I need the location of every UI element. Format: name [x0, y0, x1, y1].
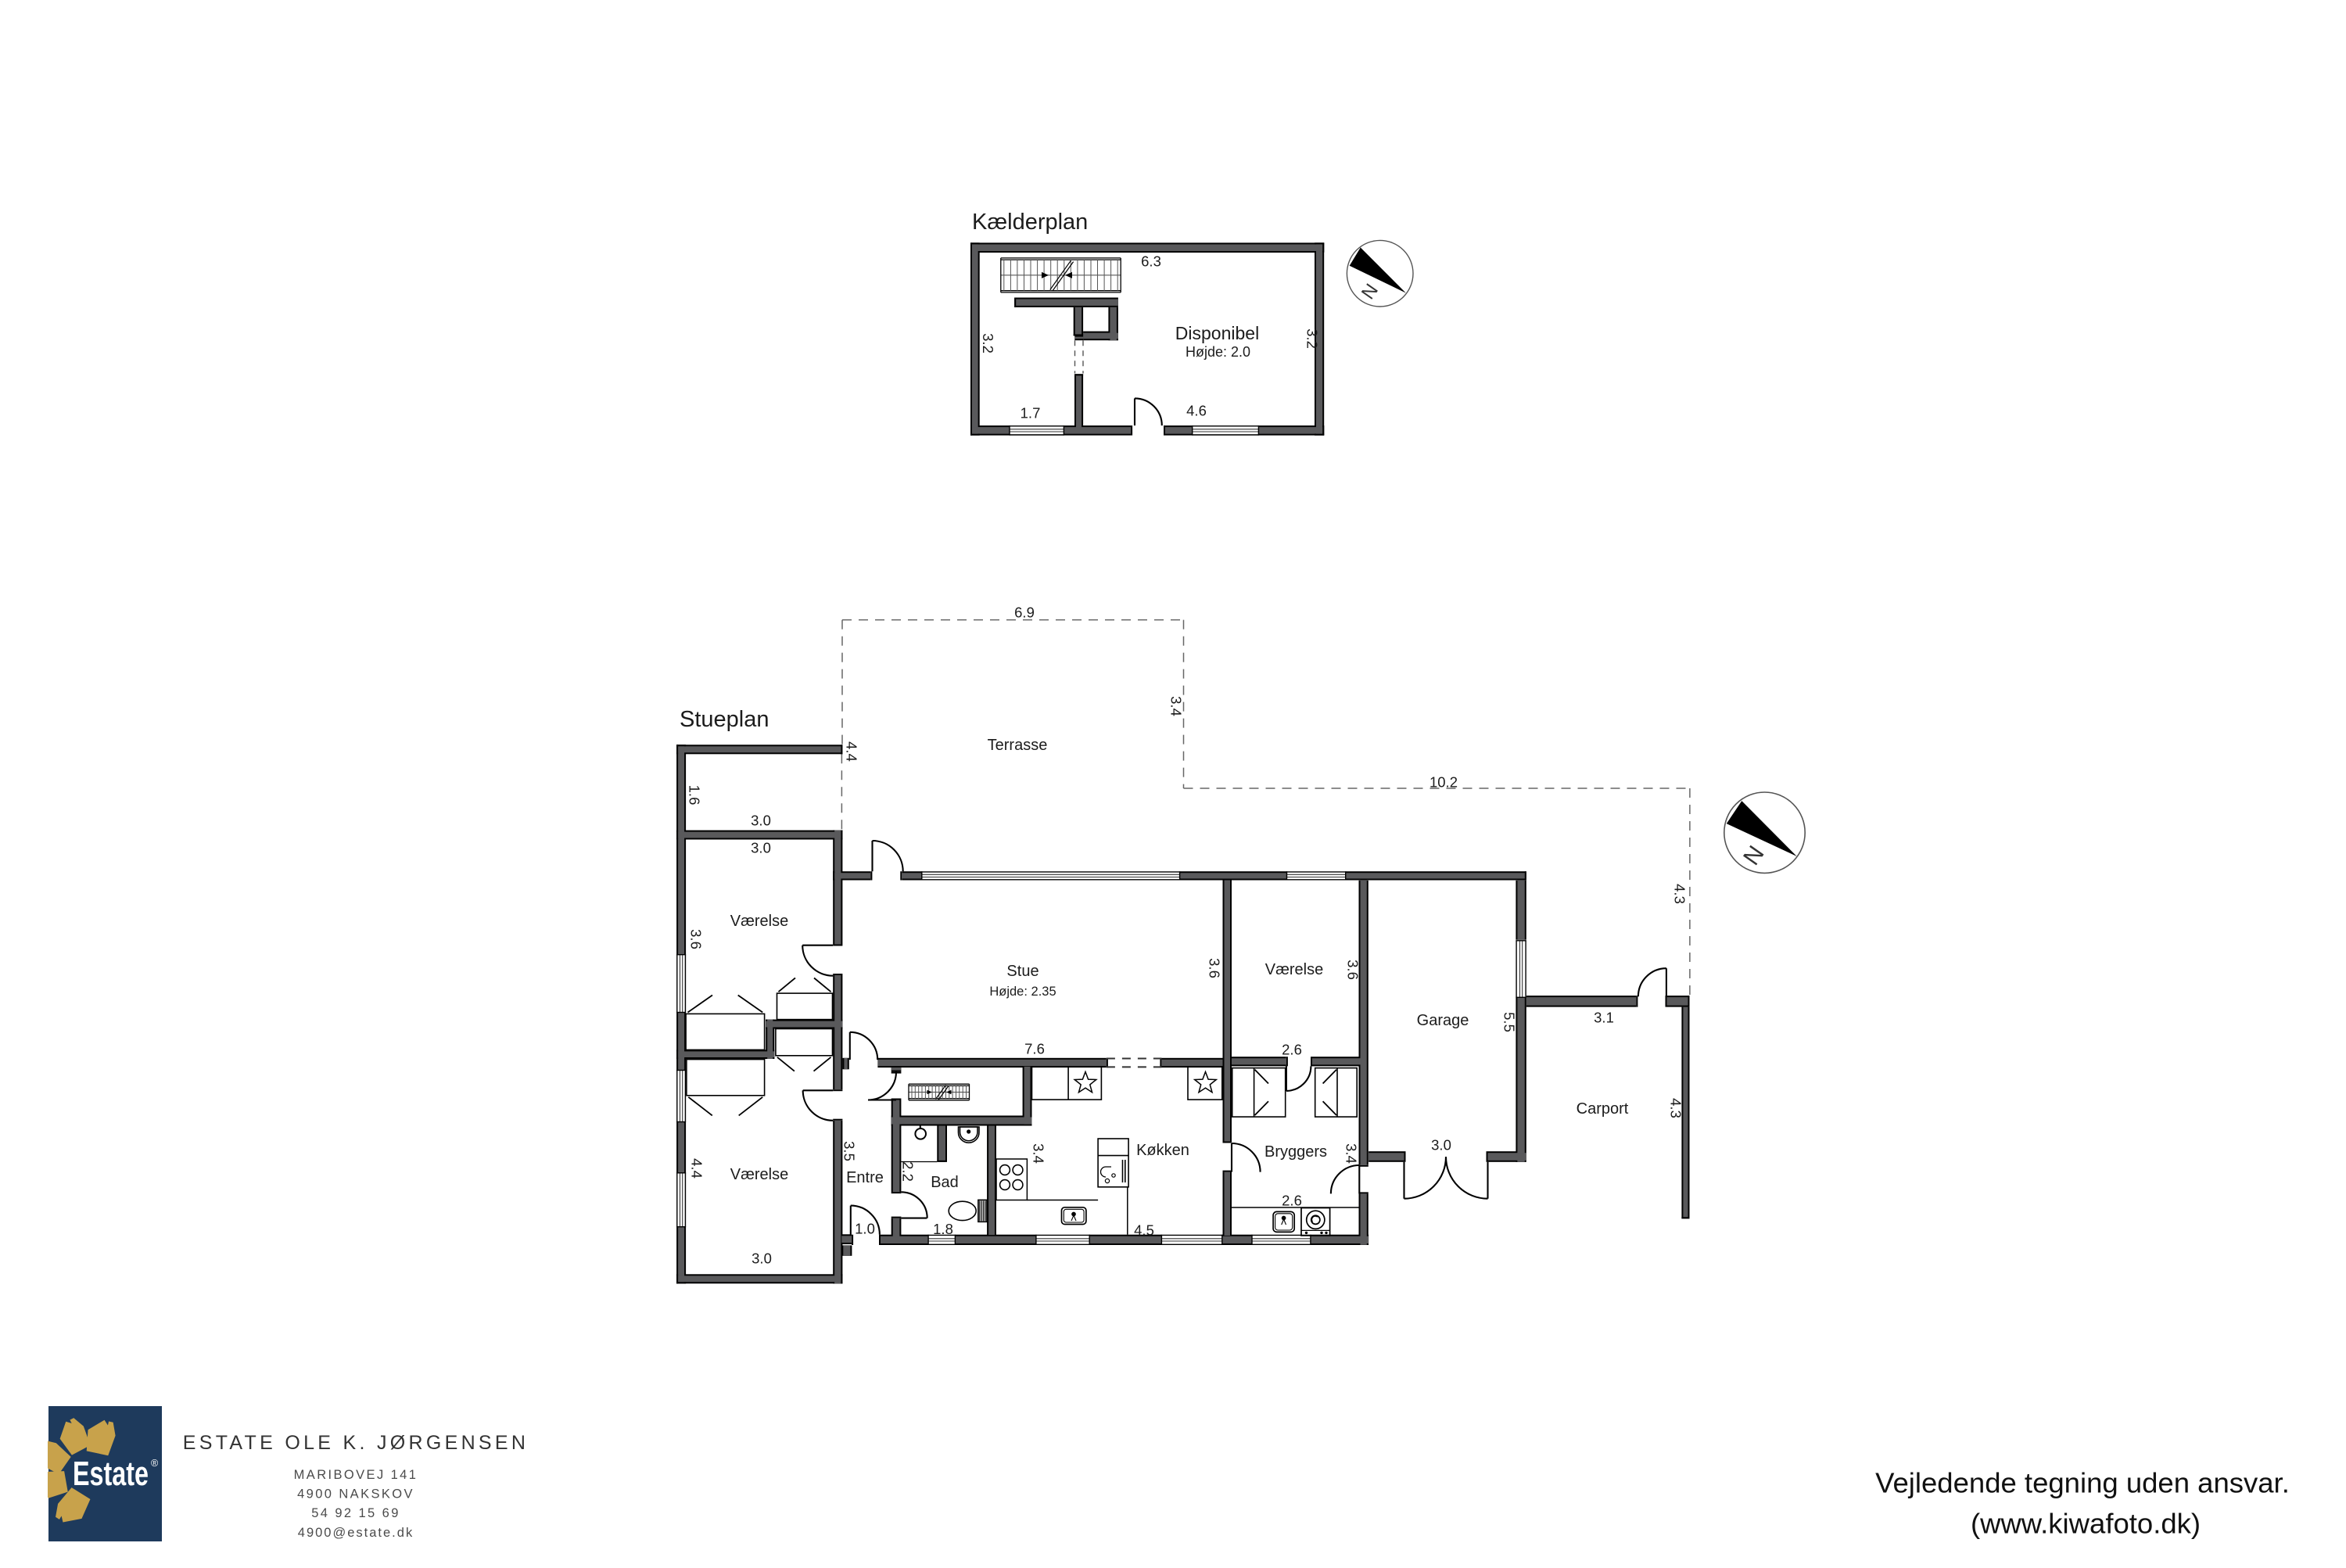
svg-text:Højde: 2.0: Højde: 2.0 — [1186, 344, 1250, 360]
svg-text:Stue: Stue — [1006, 963, 1038, 980]
svg-text:Værelse: Værelse — [730, 913, 788, 930]
svg-text:Estate: Estate — [73, 1455, 149, 1493]
svg-text:1.6: 1.6 — [687, 785, 703, 806]
svg-text:10.2: 10.2 — [1429, 774, 1458, 791]
svg-text:3.6: 3.6 — [1207, 958, 1223, 978]
svg-text:3.4: 3.4 — [1168, 696, 1185, 716]
svg-text:1.7: 1.7 — [1021, 405, 1041, 422]
svg-text:Terrasse: Terrasse — [988, 737, 1048, 754]
svg-text:Stueplan: Stueplan — [680, 707, 769, 732]
svg-text:Kælderplan: Kælderplan — [972, 210, 1088, 235]
svg-text:2.2: 2.2 — [900, 1161, 917, 1182]
svg-text:Værelse: Værelse — [730, 1166, 788, 1183]
svg-text:4900 NAKSKOV: 4900 NAKSKOV — [297, 1487, 414, 1502]
svg-text:2.6: 2.6 — [1282, 1042, 1302, 1058]
svg-text:54 92 15 69: 54 92 15 69 — [311, 1506, 400, 1520]
svg-text:3.6: 3.6 — [1345, 960, 1361, 980]
svg-text:2.6: 2.6 — [1282, 1193, 1302, 1209]
svg-text:6.3: 6.3 — [1141, 253, 1161, 270]
svg-text:Entre: Entre — [846, 1169, 884, 1186]
svg-text:1.8: 1.8 — [933, 1221, 953, 1237]
svg-text:7.6: 7.6 — [1024, 1041, 1045, 1057]
svg-text:4.3: 4.3 — [1672, 884, 1688, 904]
svg-text:4.3: 4.3 — [1668, 1098, 1684, 1118]
svg-text:MARIBOVEJ 141: MARIBOVEJ 141 — [294, 1468, 418, 1482]
svg-text:Bryggers: Bryggers — [1264, 1143, 1327, 1161]
svg-text:(www.kiwafoto.dk): (www.kiwafoto.dk) — [1971, 1508, 2201, 1540]
svg-text:3.4: 3.4 — [1031, 1143, 1047, 1164]
svg-text:3.0: 3.0 — [751, 813, 771, 829]
svg-text:4.4: 4.4 — [689, 1158, 705, 1179]
svg-text:Køkken: Køkken — [1136, 1142, 1189, 1159]
svg-text:3.0: 3.0 — [751, 840, 771, 856]
svg-text:3.1: 3.1 — [1594, 1010, 1614, 1026]
svg-text:4.6: 4.6 — [1186, 403, 1207, 419]
svg-text:Vejledende tegning uden ansvar: Vejledende tegning uden ansvar. — [1875, 1467, 2290, 1499]
svg-text:Garage: Garage — [1417, 1012, 1469, 1029]
svg-text:3.4: 3.4 — [1343, 1143, 1360, 1164]
svg-text:4.5: 4.5 — [1134, 1222, 1154, 1239]
svg-text:3.2: 3.2 — [980, 333, 996, 353]
svg-text:5.5: 5.5 — [1501, 1012, 1518, 1032]
svg-text:®: ® — [151, 1458, 159, 1469]
svg-text:3.2: 3.2 — [1304, 328, 1321, 349]
svg-text:Bad: Bad — [931, 1174, 959, 1191]
svg-text:Højde: 2.35: Højde: 2.35 — [989, 985, 1056, 999]
svg-text:4.4: 4.4 — [844, 741, 860, 762]
svg-text:4900@estate.dk: 4900@estate.dk — [298, 1526, 414, 1540]
svg-text:6.9: 6.9 — [1014, 605, 1035, 621]
svg-text:Carport: Carport — [1577, 1100, 1629, 1118]
svg-text:ESTATE OLE K. JØRGENSEN: ESTATE OLE K. JØRGENSEN — [183, 1432, 529, 1454]
svg-text:3.0: 3.0 — [752, 1250, 772, 1267]
svg-text:3.0: 3.0 — [1431, 1137, 1451, 1154]
svg-text:1.0: 1.0 — [855, 1221, 875, 1237]
svg-text:3.6: 3.6 — [688, 929, 705, 949]
svg-text:Disponibel: Disponibel — [1175, 323, 1259, 343]
svg-text:3.5: 3.5 — [841, 1141, 858, 1161]
svg-text:Værelse: Værelse — [1265, 961, 1323, 978]
